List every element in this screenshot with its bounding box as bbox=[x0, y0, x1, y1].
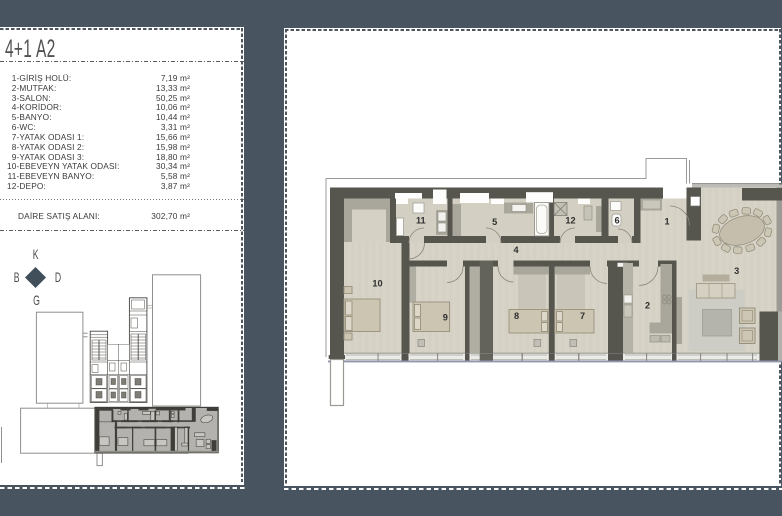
svg-text:9: 9 bbox=[443, 312, 448, 322]
svg-text:5: 5 bbox=[492, 217, 497, 227]
svg-text:12: 12 bbox=[565, 216, 575, 226]
svg-text:6: 6 bbox=[614, 216, 619, 226]
svg-text:11: 11 bbox=[416, 216, 426, 226]
svg-text:4: 4 bbox=[513, 245, 519, 255]
svg-text:10: 10 bbox=[372, 279, 382, 289]
svg-text:2: 2 bbox=[645, 301, 650, 311]
svg-text:1: 1 bbox=[664, 217, 669, 227]
svg-text:7: 7 bbox=[580, 311, 585, 321]
svg-text:3: 3 bbox=[734, 266, 739, 276]
svg-text:8: 8 bbox=[514, 311, 519, 321]
